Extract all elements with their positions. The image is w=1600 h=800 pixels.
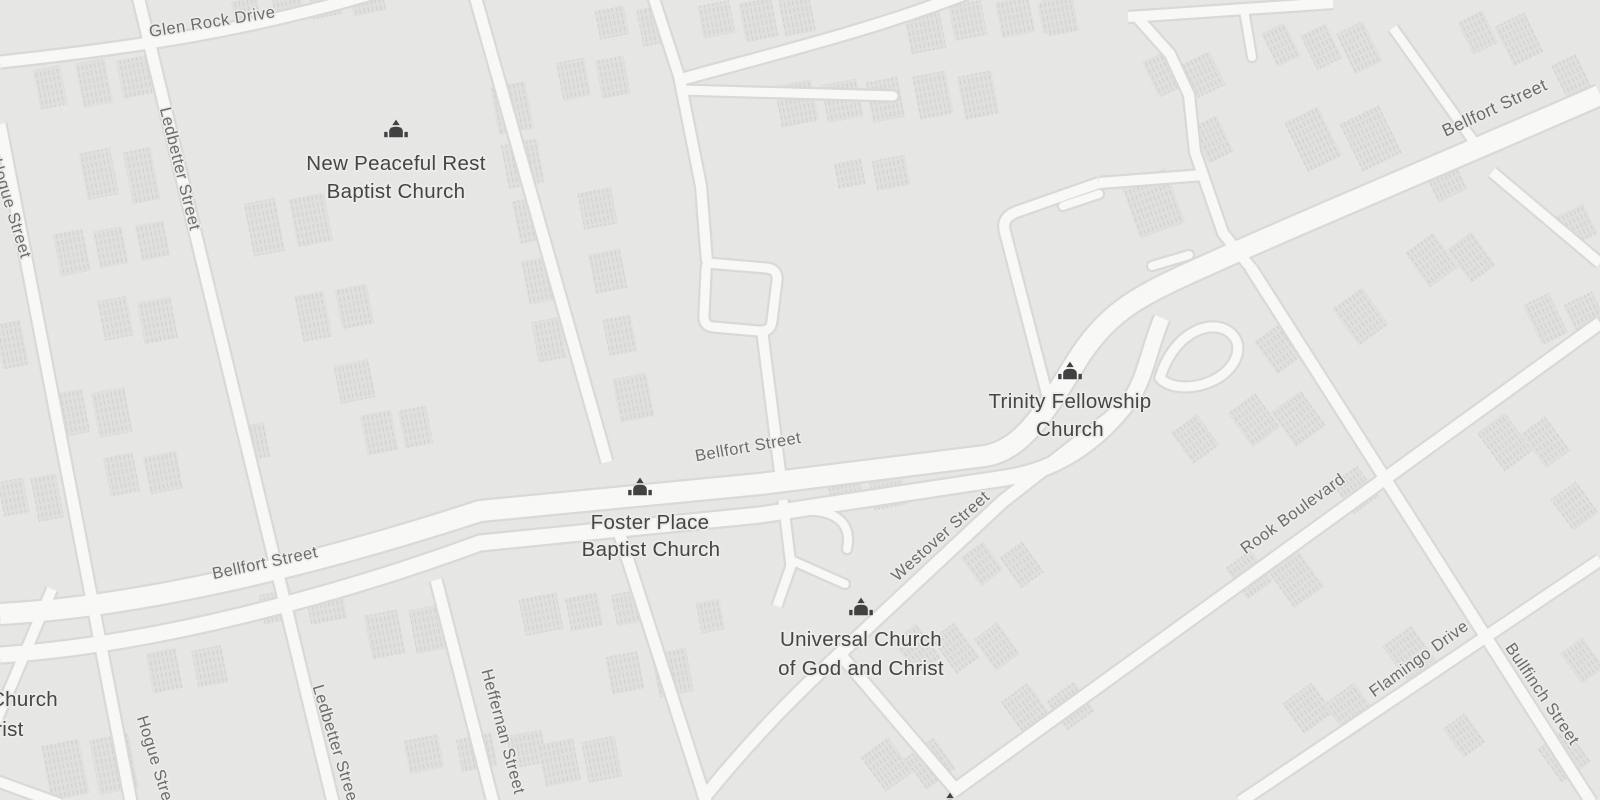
poi-label-line: Foster Place	[591, 511, 710, 534]
building	[697, 0, 735, 39]
building	[995, 0, 1035, 38]
building	[577, 187, 617, 230]
building	[334, 359, 376, 404]
poi-label-line: Church	[1036, 418, 1104, 441]
building	[834, 159, 866, 189]
poi-label-line: Universal Church	[780, 628, 942, 651]
building	[872, 155, 911, 191]
building	[595, 6, 629, 40]
poi-label-line: Baptist Church	[582, 538, 721, 561]
poi-label-line: Church	[0, 688, 58, 711]
map-viewport[interactable]: Glen Rock Drive Hogue Street Ledbetter S…	[0, 0, 1600, 800]
poi-label-line: of God and Christ	[778, 657, 944, 680]
road-top-stub-road	[681, 90, 893, 96]
poi-label-line: Trinity Fellowship	[989, 390, 1152, 413]
building	[519, 592, 564, 636]
building	[565, 592, 603, 631]
poi-label-line: Christ	[0, 718, 24, 741]
poi-label-line: New Peaceful Rest	[306, 152, 485, 175]
building	[403, 734, 444, 774]
building	[143, 451, 183, 495]
map-canvas[interactable]: Glen Rock Drive Hogue Street Ledbetter S…	[0, 0, 1600, 800]
poi-label-line: Baptist Church	[327, 180, 466, 203]
